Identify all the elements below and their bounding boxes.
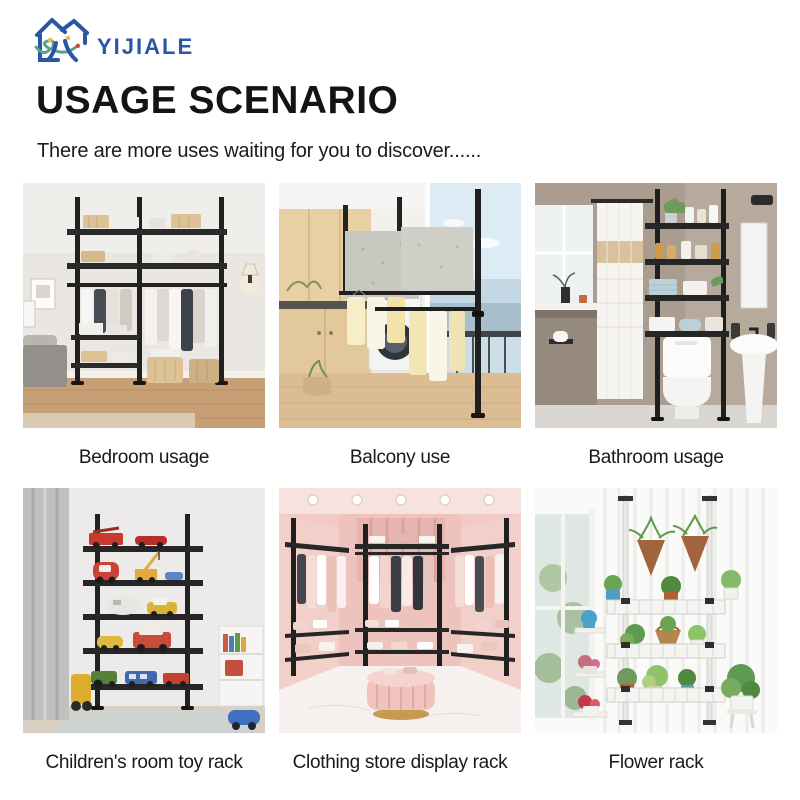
scenario-card-bedroom: Bedroom usage (23, 183, 265, 488)
logo-house-icon (32, 13, 94, 67)
scenario-card-balcony: Balcony use (279, 183, 521, 488)
bathroom-shelf-photo (535, 183, 777, 428)
flower-rack-photo (535, 488, 777, 733)
scenario-grid: Bedroom usage (23, 183, 777, 793)
caption-clothing-store: Clothing store display rack (279, 733, 521, 793)
brand-logo: YIJIALE (32, 13, 194, 67)
scenario-card-clothing-store: Clothing store display rack (279, 488, 521, 793)
balcony-drying-rack-photo (279, 183, 521, 428)
scenario-card-bathroom: Bathroom usage (535, 183, 777, 488)
store-display-rack-photo (279, 488, 521, 733)
product-usage-page: YIJIALE USAGE SCENARIO There are more us… (0, 0, 800, 800)
page-subtitle: There are more uses waiting for you to d… (37, 140, 481, 163)
caption-flower-rack: Flower rack (535, 733, 777, 793)
caption-bedroom: Bedroom usage (23, 428, 265, 488)
scenario-card-flower-rack: Flower rack (535, 488, 777, 793)
brand-name: YIJIALE (94, 34, 194, 67)
scenario-card-children-room: Children's room toy rack (23, 488, 265, 793)
caption-bathroom: Bathroom usage (535, 428, 777, 488)
caption-balcony: Balcony use (279, 428, 521, 488)
bedroom-rack-photo (23, 183, 265, 428)
page-title: USAGE SCENARIO (36, 79, 398, 123)
toy-rack-photo (23, 488, 265, 733)
caption-children-room: Children's room toy rack (23, 733, 265, 793)
